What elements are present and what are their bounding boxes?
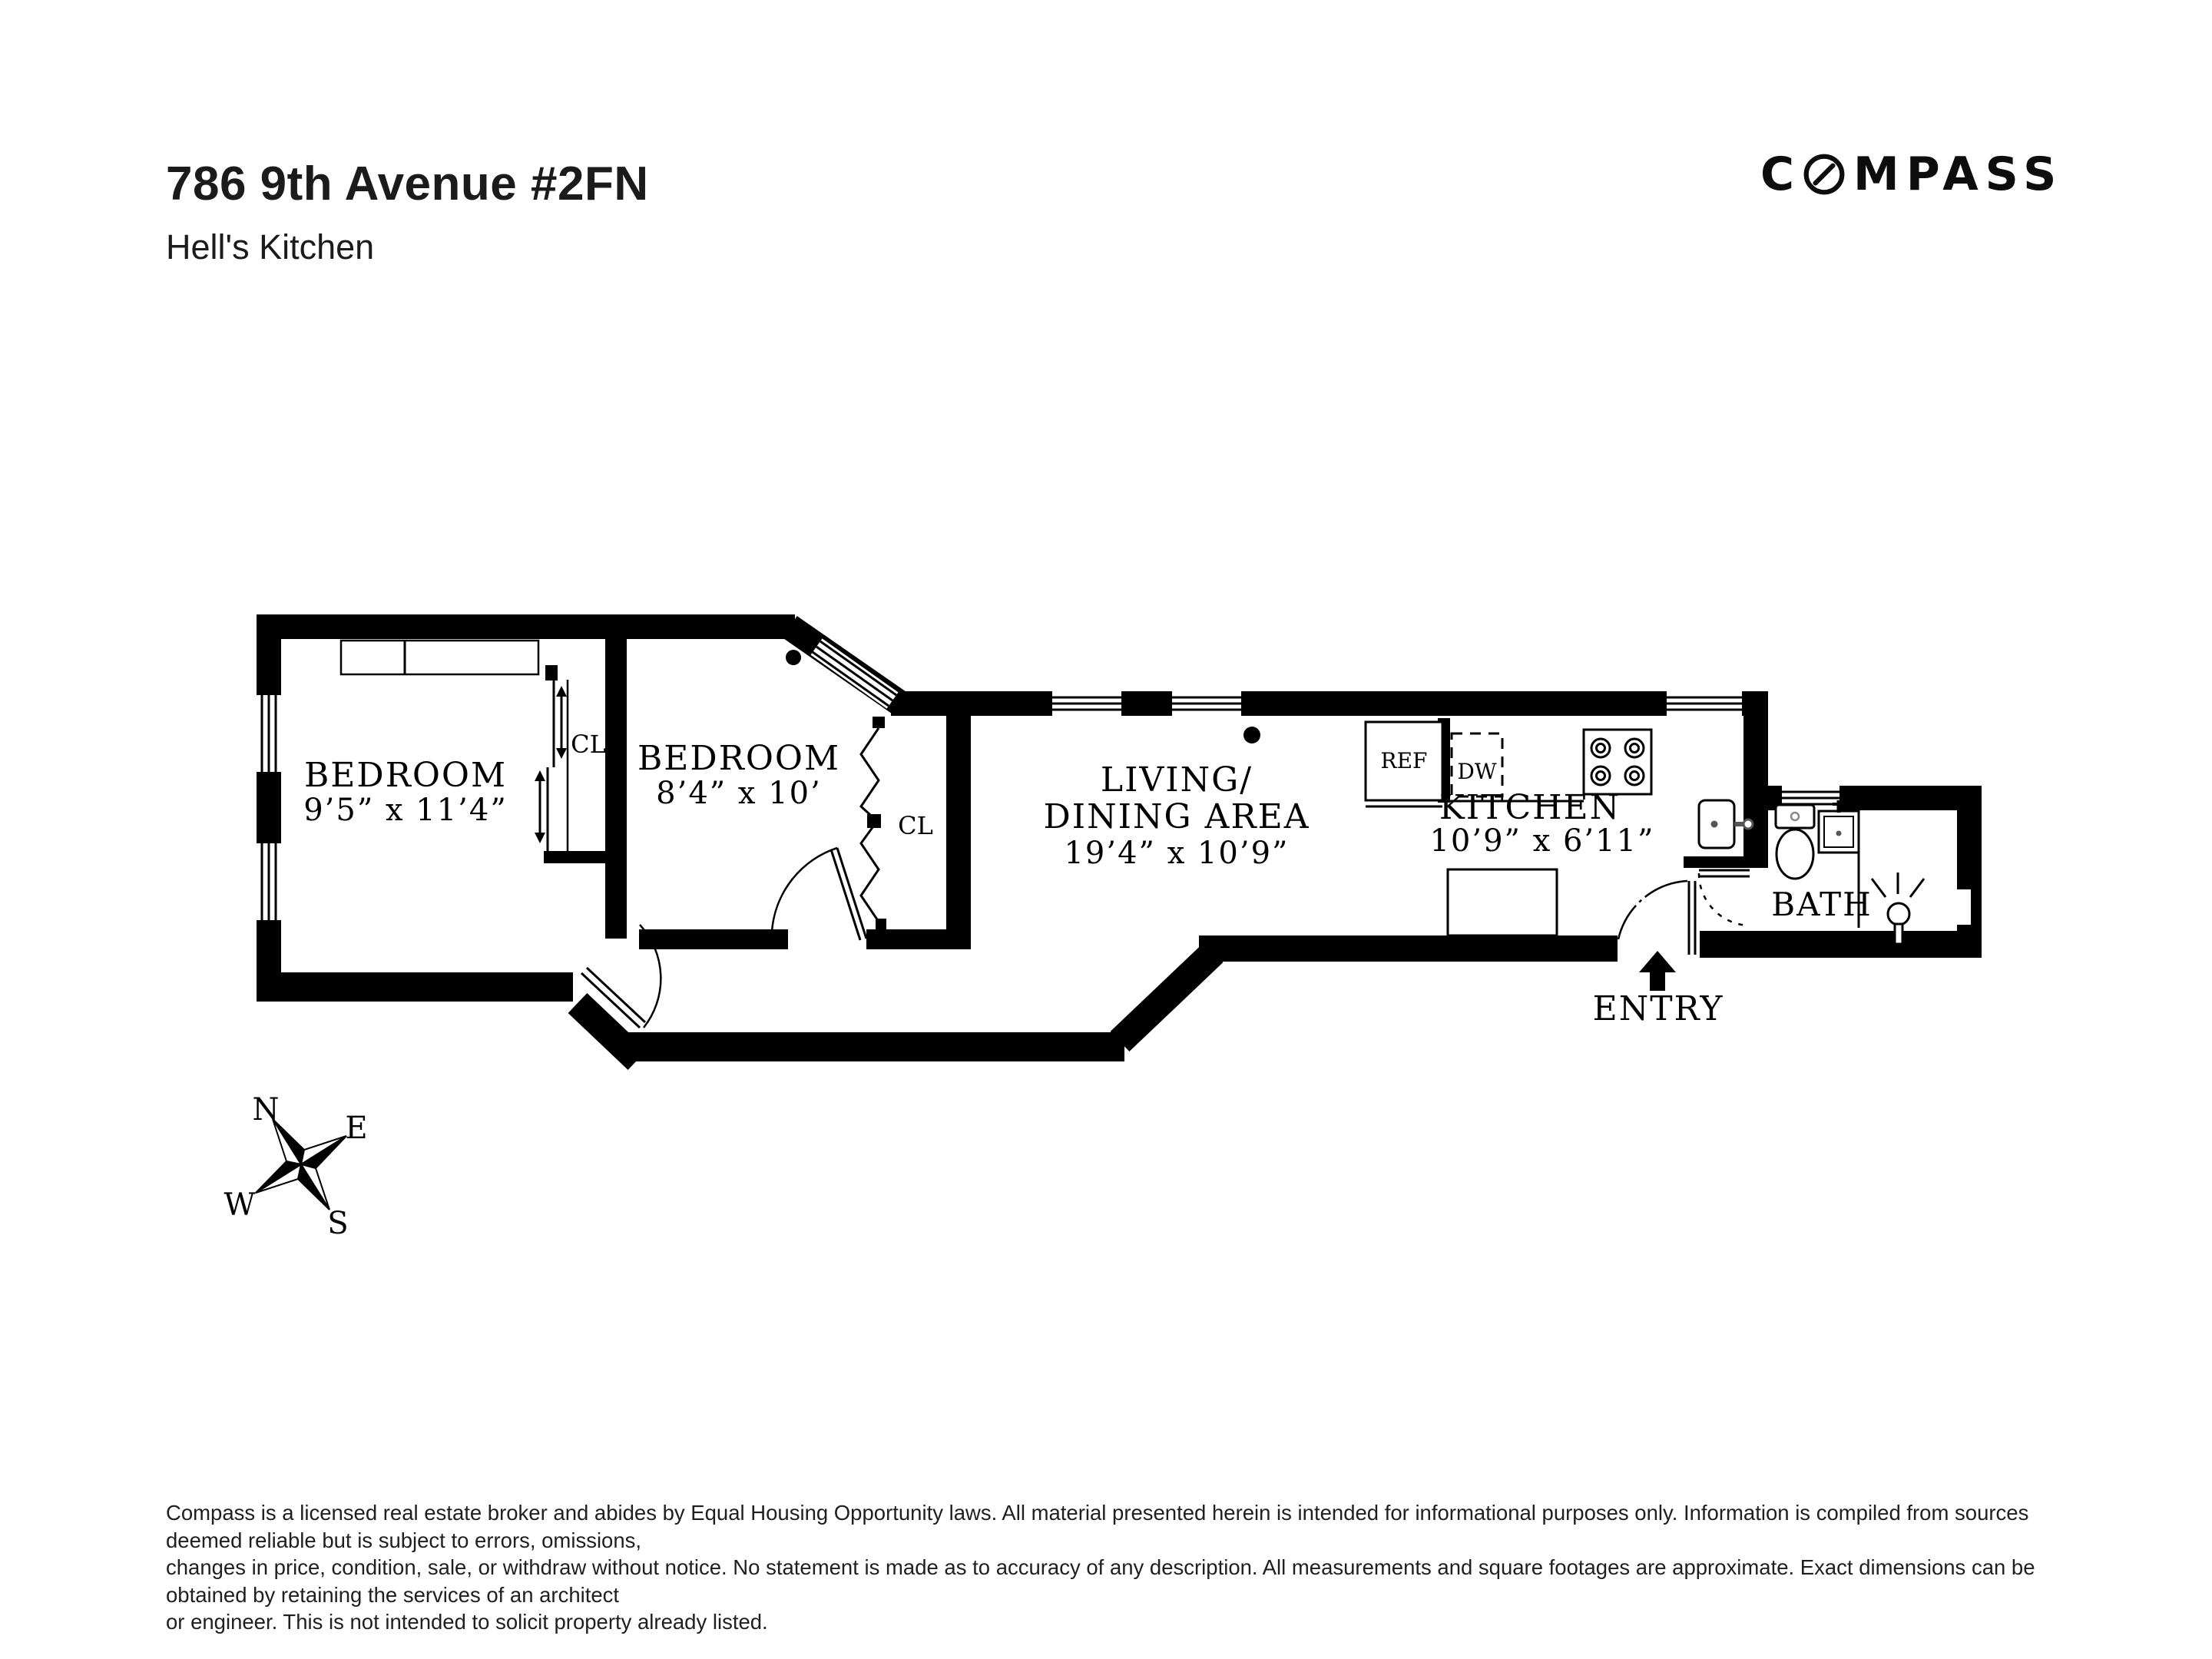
closet1-sliding-doors — [535, 680, 568, 851]
bedroom1-builtin — [341, 641, 538, 674]
bedroom2-name: BEDROOM — [637, 739, 840, 778]
window-diagonal — [813, 641, 896, 706]
closet2-accordion-door — [861, 728, 879, 929]
refrigerator-label: REF — [1381, 748, 1428, 773]
compass-rose-icon — [256, 1119, 346, 1210]
kitchen-name: KITCHEN — [1439, 788, 1621, 827]
bedroom1-dims: 9’5” x 11’4” — [303, 793, 508, 828]
bath-wall-niche — [1955, 889, 1971, 925]
living-dims: 19’4” x 10’9” — [1064, 836, 1289, 871]
disclaimer-line: Compass is a licensed real estate broker… — [166, 1499, 2055, 1554]
window-kitchen — [1667, 691, 1742, 716]
closet2-label: CL — [898, 811, 933, 840]
compass-north-label: N — [253, 1092, 280, 1128]
kitchen-dims: 10’9” x 6’11” — [1429, 823, 1654, 859]
kitchen-peninsula-counter — [1448, 869, 1557, 935]
window-left-1 — [257, 695, 281, 772]
closet1-label: CL — [571, 730, 606, 759]
floor-plan-drawing: BEDROOM 9’5” x 11’4” BEDROOM 8’4” x 10’ … — [0, 0, 2212, 1659]
compass-south-label: S — [327, 1206, 348, 1241]
disclaimer-line: changes in price, condition, sale, or wi… — [166, 1554, 2055, 1608]
living-name-line2: DINING AREA — [1044, 797, 1310, 836]
bedroom2-door — [772, 848, 866, 940]
toilet-icon — [1776, 805, 1814, 879]
compass-west-label: W — [224, 1187, 255, 1223]
bath-name: BATH — [1771, 886, 1873, 923]
entry-label: ENTRY — [1593, 989, 1724, 1028]
bath-door — [1699, 870, 1750, 926]
window-living-2 — [1172, 691, 1241, 716]
floor-plan-sheet: { "header": { "address": "786 9th Avenue… — [0, 0, 2212, 1659]
entry-arrow-icon — [1639, 951, 1676, 991]
entry-door — [1618, 881, 1695, 955]
disclaimer-line: or engineer. This is not intended to sol… — [166, 1608, 2055, 1636]
bedroom1-name: BEDROOM — [304, 756, 507, 795]
window-left-2 — [257, 843, 281, 920]
compass-east-label: E — [345, 1111, 367, 1146]
bedroom2-dims: 8’4” x 10’ — [656, 776, 822, 811]
living-name-line1: LIVING/ — [1101, 760, 1253, 800]
window-living-1 — [1052, 691, 1121, 716]
stove-icon — [1584, 730, 1651, 794]
dishwasher-label: DW — [1457, 759, 1496, 784]
legal-disclaimer: Compass is a licensed real estate broker… — [166, 1499, 2055, 1636]
